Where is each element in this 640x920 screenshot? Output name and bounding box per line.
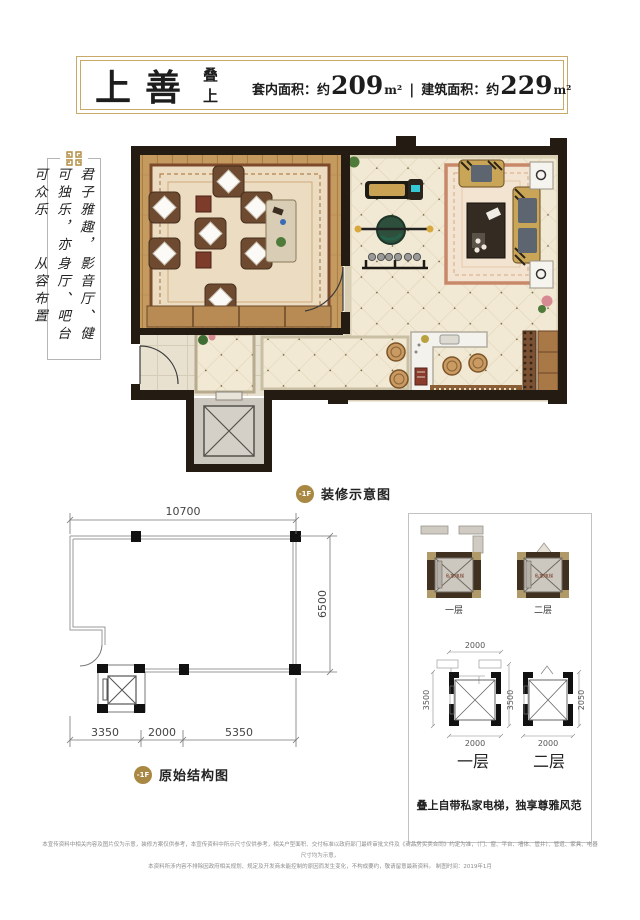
side-table-lamp [530,261,553,288]
area2-unit: m² [553,83,571,97]
svg-text:6500: 6500 [316,590,329,618]
area2-value: 229 [500,71,552,100]
elevator-wall [186,390,194,472]
area-separator: | [409,82,414,98]
svg-text:2000: 2000 [148,726,176,739]
side-table [196,196,211,212]
rendered-elevator-floor2: 私家电梯 [517,543,569,598]
elevator-caption: 叠上自带私家电梯，独享尊雅风范 [417,798,582,812]
svg-text:2000: 2000 [465,641,485,650]
svg-text:3500: 3500 [422,690,431,710]
side-note-line1: 君子雅趣，可独乐，亦可众乐 [52,167,96,256]
svg-text:5350: 5350 [225,726,253,739]
wine-rack [523,331,536,391]
svg-text:2000: 2000 [465,739,485,748]
elevator-shaft [194,392,264,464]
floor1-large-label: 一层 [457,752,489,771]
bar-cabinet [538,331,558,396]
column [328,392,348,404]
area2-label: 建筑面积：约 [421,79,499,98]
elevator-wall [264,390,272,472]
disclaimer-line1: 本宣传资料中相关内容及图片仅为示意，装修方案仅供参考，本宣传资料中所示尺寸仅供参… [40,840,600,862]
plan-subtitle: 叠上 [203,64,218,106]
column [396,136,416,155]
decorated-plan-label: 装修示意图 [321,484,391,503]
column [548,392,567,404]
side-note-box: 君子雅趣，可独乐，亦可众乐 影音厅、健身厅、吧台从容布置 [47,158,101,360]
rendered-elevator-floor1: 私家电梯 [421,526,483,598]
floor1-small-label: 一层 [445,605,463,616]
area1-unit: m² [384,83,402,97]
column [550,138,567,155]
area1-label: 套内面积：约 [252,79,330,98]
area1-value: 209 [331,71,383,100]
structure-floorplan: 10700 6500 3350 2000 5350 [50,505,350,760]
sofa-right [513,187,540,265]
decorated-plan-caption: -1F 装修示意图 [296,484,391,503]
svg-text:3500: 3500 [506,690,515,710]
side-note-line2: 影音厅、健身厅、吧台从容布置 [52,256,96,351]
svg-text:2050: 2050 [577,690,586,710]
ornament-icon [60,150,88,167]
disclaimer: 本宣传资料中相关内容及图片仅为示意，装修方案仅供参考，本宣传资料中所示尺寸仅供参… [40,840,600,873]
flower-pot [542,296,553,307]
brochure-page: 上善 叠上 套内面积：约 209 m² | 建筑面积：约 229 m² [0,0,640,920]
svg-text:10700: 10700 [166,505,201,518]
disclaimer-line2: 本资料所涉内容不排除因政府相关规划、规定及开发商未能控制的原因而发生变化，不构成… [40,862,600,873]
elevator-diagrams: 私家电梯 一层 私家电梯 二层 [409,514,589,840]
corridor-tile [262,337,408,389]
side-note-text: 君子雅趣，可独乐，亦可众乐 影音厅、健身厅、吧台从容布置 [52,167,96,351]
media-room-furniture [147,165,331,327]
structural-elevator-floor1: 2000 3500 3500 2000 [422,641,515,748]
decorated-floorplan [128,136,575,481]
side-table-lamp [530,162,553,189]
armchair-top [459,160,504,187]
svg-text:3350: 3350 [91,726,119,739]
structure-plan-label: 原始结构图 [159,765,229,784]
structure-elevator [103,676,136,704]
structure-columns [97,531,301,713]
private-elevator-panel: 私家电梯 一层 私家电梯 二层 [408,513,592,843]
plant [349,157,360,168]
title-box-inner: 上善 叠上 套内面积：约 209 m² | 建筑面积：约 229 m² [80,60,564,110]
svg-text:2000: 2000 [538,739,558,748]
floor-badge: -1F [134,766,152,784]
structure-plan-caption: -1F 原始结构图 [134,765,229,784]
floor2-small-label: 二层 [534,605,552,616]
structural-elevator-floor2: 2050 2000 [521,666,586,748]
elevator-wall [186,464,272,472]
area-info: 套内面积：约 209 m² | 建筑面积：约 229 m² [252,71,571,100]
side-table [196,252,211,268]
entry-plant [198,335,208,345]
svg-text:私家电梯: 私家电梯 [446,573,465,580]
svg-text:私家电梯: 私家电梯 [535,573,554,580]
floor-badge: -1F [296,485,314,503]
plan-title: 上善 [95,59,195,111]
title-box: 上善 叠上 套内面积：约 209 m² | 建筑面积：约 229 m² [76,56,568,114]
floor2-large-label: 二层 [533,752,565,771]
